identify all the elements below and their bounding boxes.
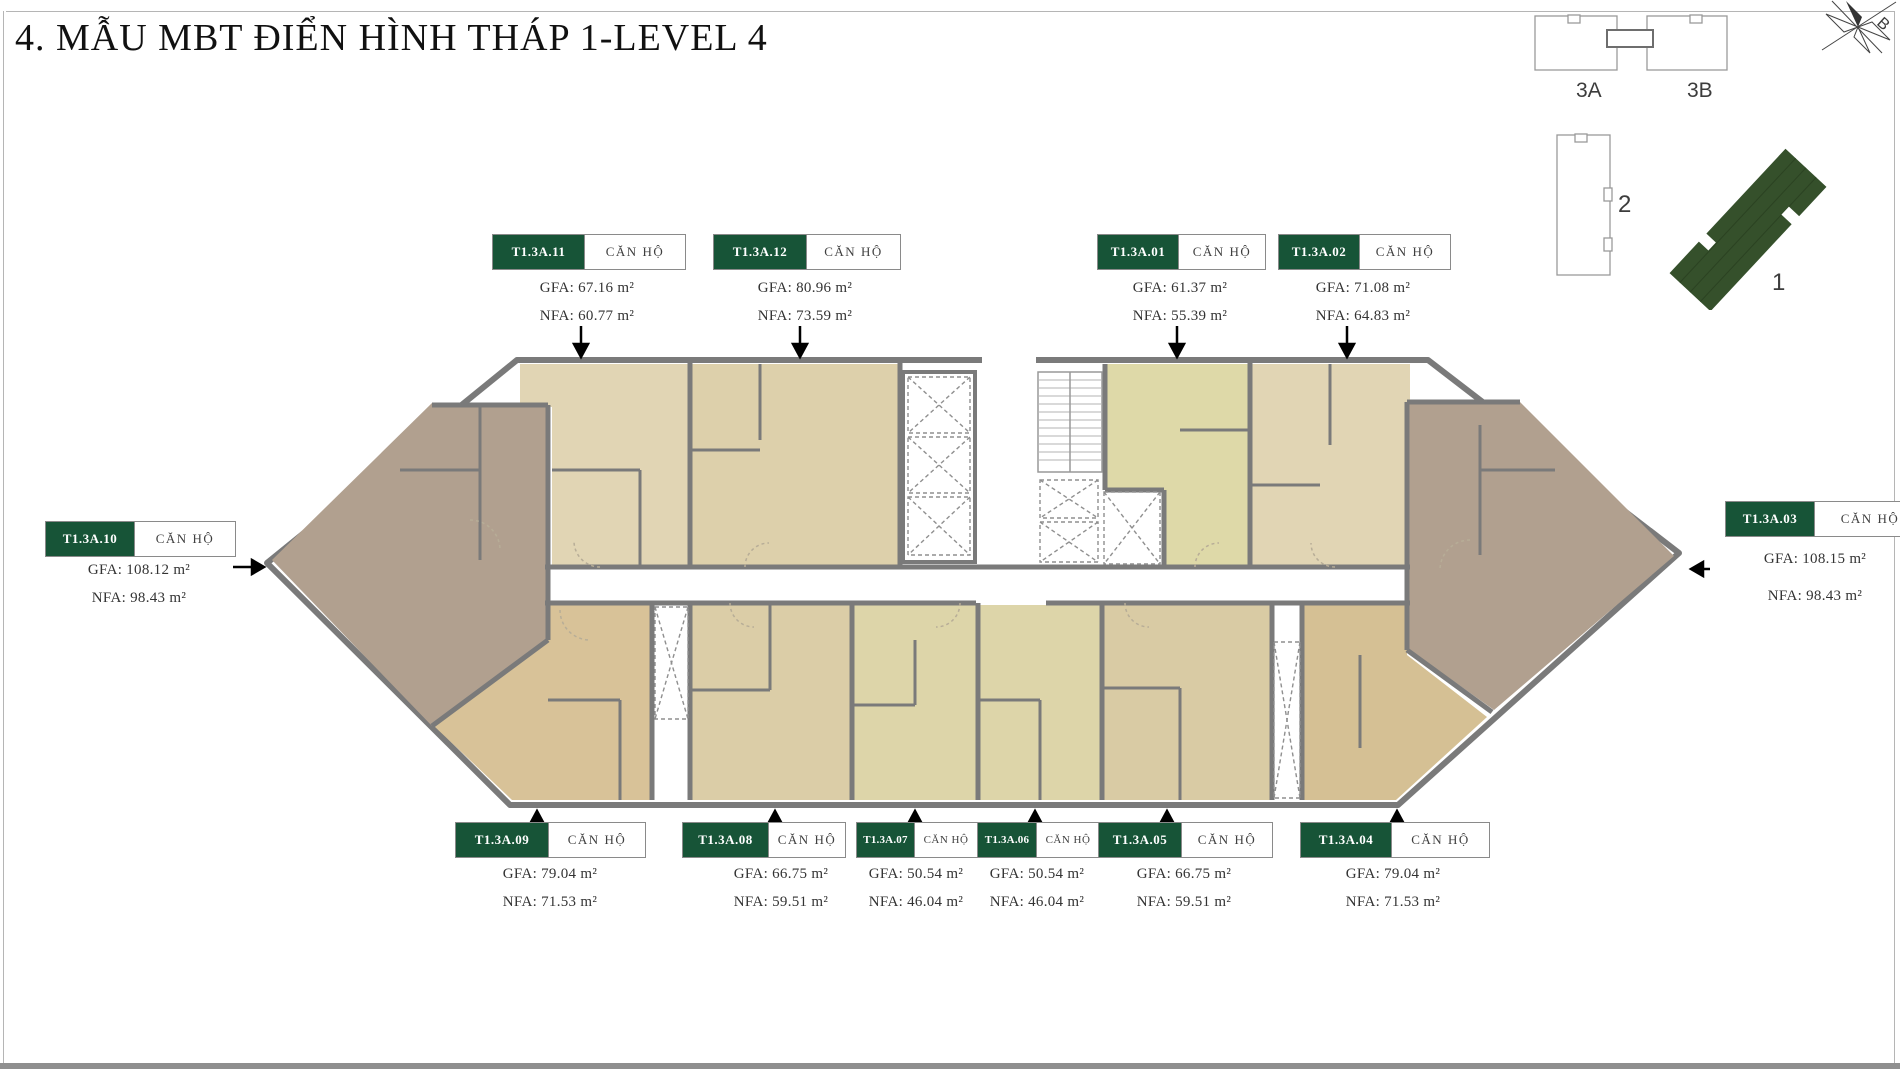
unit-type: CĂN HỘ xyxy=(548,823,645,857)
stair-icon xyxy=(1038,372,1102,472)
key-plan-block-3a-outline xyxy=(1535,16,1617,70)
unit-gfa: GFA: 71.08 m² xyxy=(1263,280,1463,297)
unit-gfa: GFA: 80.96 m² xyxy=(705,280,905,297)
unit-label-t1.3a.04: T1.3A.04 CĂN HỘ xyxy=(1300,822,1490,858)
unit-type: CĂN HỘ xyxy=(1814,502,1900,536)
unit-gfa: GFA: 67.16 m² xyxy=(487,280,687,297)
unit-label-t1.3a.07: T1.3A.07 CĂN HỘ xyxy=(856,822,978,858)
unit-gfa: GFA: 61.37 m² xyxy=(1080,280,1280,297)
unit-nfa: NFA: 71.53 m² xyxy=(1293,894,1493,911)
unit-region-t1.3a.12 xyxy=(690,364,900,565)
key-plan-block-2-outline xyxy=(1557,135,1610,275)
unit-id: T1.3A.11 xyxy=(493,235,584,269)
unit-nfa: NFA: 55.39 m² xyxy=(1080,308,1280,325)
unit-id: T1.3A.05 xyxy=(1099,823,1181,857)
unit-type: CĂN HỘ xyxy=(1036,823,1099,857)
unit-type: CĂN HỘ xyxy=(806,235,900,269)
arrow-left-icon xyxy=(1691,562,1710,576)
unit-label-t1.3a.02: T1.3A.02 CĂN HỘ xyxy=(1278,234,1451,270)
unit-id: T1.3A.08 xyxy=(683,823,768,857)
key-plan: 3A 3B 2 1 B xyxy=(1500,0,1900,310)
unit-id: T1.3A.01 xyxy=(1098,235,1178,269)
unit-label-t1.3a.11: T1.3A.11 CĂN HỘ xyxy=(492,234,686,270)
unit-label-t1.3a.05: T1.3A.05 CĂN HỘ xyxy=(1098,822,1273,858)
unit-label-t1.3a.06: T1.3A.06 CĂN HỘ xyxy=(977,822,1100,858)
north-label: B xyxy=(1873,14,1892,34)
unit-id: T1.3A.02 xyxy=(1279,235,1359,269)
unit-nfa: NFA: 98.43 m² xyxy=(1715,588,1900,605)
key-plan-label-3a: 3A xyxy=(1576,79,1602,102)
key-plan-label-2: 2 xyxy=(1618,191,1631,218)
unit-id: T1.3A.03 xyxy=(1726,502,1814,536)
key-plan-connector xyxy=(1607,30,1653,47)
arrow-down-icon xyxy=(1340,326,1354,357)
unit-id: T1.3A.06 xyxy=(978,823,1036,857)
unit-nfa: NFA: 98.43 m² xyxy=(39,590,239,607)
unit-label-t1.3a.10: T1.3A.10 CĂN HỘ xyxy=(45,521,236,557)
unit-gfa: GFA: 108.15 m² xyxy=(1715,551,1900,568)
unit-type: CĂN HỘ xyxy=(134,522,235,556)
unit-gfa: GFA: 66.75 m² xyxy=(1084,866,1284,883)
unit-label-t1.3a.12: T1.3A.12 CĂN HỘ xyxy=(713,234,901,270)
unit-nfa: NFA: 64.83 m² xyxy=(1263,308,1463,325)
unit-id: T1.3A.07 xyxy=(857,823,914,857)
unit-label-t1.3a.03: T1.3A.03 CĂN HỘ xyxy=(1725,501,1900,537)
unit-type: CĂN HỘ xyxy=(1178,235,1265,269)
unit-nfa: NFA: 73.59 m² xyxy=(705,308,905,325)
unit-gfa: GFA: 79.04 m² xyxy=(1293,866,1493,883)
unit-id: T1.3A.12 xyxy=(714,235,806,269)
unit-type: CĂN HỘ xyxy=(1359,235,1450,269)
unit-region-t1.3a.03 xyxy=(1407,402,1674,710)
unit-label-t1.3a.08: T1.3A.08 CĂN HỘ xyxy=(682,822,846,858)
frame-left-line xyxy=(3,11,4,1063)
frame-bottom-bar xyxy=(0,1063,1900,1069)
arrow-down-icon xyxy=(574,326,588,357)
unit-id: T1.3A.09 xyxy=(456,823,548,857)
page-title: 4. MẪU MBT ĐIỂN HÌNH THÁP 1-LEVEL 4 xyxy=(15,16,768,60)
arrow-down-icon xyxy=(793,326,807,357)
unit-type: CĂN HỘ xyxy=(1391,823,1489,857)
unit-id: T1.3A.10 xyxy=(46,522,134,556)
unit-type: CĂN HỘ xyxy=(1181,823,1272,857)
unit-label-t1.3a.01: T1.3A.01 CĂN HỘ xyxy=(1097,234,1266,270)
key-plan-label-3b: 3B xyxy=(1687,79,1713,102)
slide-page: 4. MẪU MBT ĐIỂN HÌNH THÁP 1-LEVEL 4 3A xyxy=(0,0,1900,1069)
unit-nfa: NFA: 60.77 m² xyxy=(487,308,687,325)
unit-label-t1.3a.09: T1.3A.09 CĂN HỘ xyxy=(455,822,646,858)
unit-id: T1.3A.04 xyxy=(1301,823,1391,857)
unit-gfa: GFA: 79.04 m² xyxy=(450,866,650,883)
key-plan-label-1: 1 xyxy=(1772,269,1785,296)
unit-type: CĂN HỘ xyxy=(914,823,977,857)
key-plan-tower-1-shape xyxy=(1667,146,1829,310)
unit-type: CĂN HỘ xyxy=(768,823,845,857)
arrow-down-icon xyxy=(1170,326,1184,357)
unit-nfa: NFA: 59.51 m² xyxy=(1084,894,1284,911)
unit-gfa: GFA: 108.12 m² xyxy=(39,562,239,579)
unit-nfa: NFA: 71.53 m² xyxy=(450,894,650,911)
key-plan-block-3b-outline xyxy=(1647,16,1727,70)
unit-region-t1.3a.05 xyxy=(1102,605,1272,800)
floor-plan xyxy=(230,300,1710,850)
facade-opening xyxy=(982,352,1036,368)
unit-type: CĂN HỘ xyxy=(584,235,685,269)
